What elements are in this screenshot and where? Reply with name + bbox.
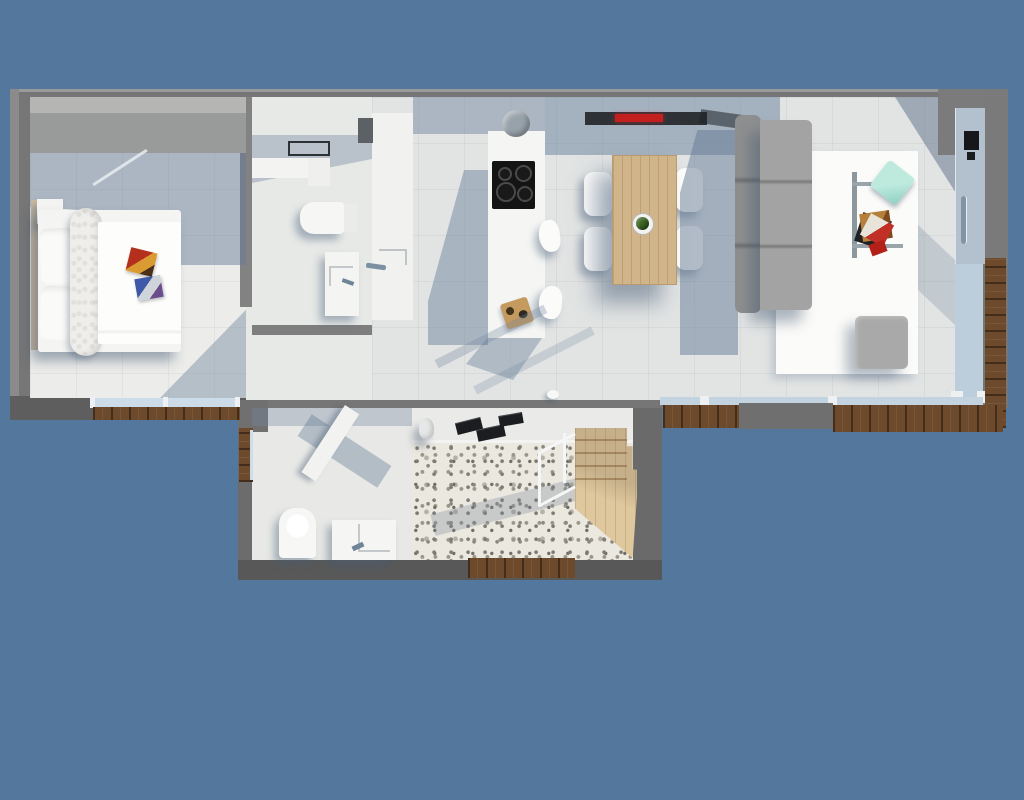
right-wall bbox=[983, 89, 1008, 265]
sofa-backrest bbox=[735, 115, 761, 313]
stair-treads bbox=[575, 428, 627, 488]
bathroom-mirror bbox=[288, 141, 330, 156]
wc-toilet-seat bbox=[284, 512, 311, 540]
burner bbox=[517, 186, 533, 202]
wall-bathroom-bottom bbox=[252, 325, 372, 335]
magazine-stack bbox=[856, 212, 896, 256]
dining-chair bbox=[584, 172, 612, 216]
vase bbox=[419, 418, 434, 439]
shower-tray-corner bbox=[379, 249, 407, 265]
sofa-seats bbox=[760, 120, 812, 310]
board-item bbox=[505, 306, 515, 316]
ottoman bbox=[855, 316, 908, 369]
door-vision-panel-small bbox=[967, 152, 975, 160]
wc-toilet bbox=[279, 508, 316, 558]
floorplan-scene bbox=[0, 0, 1024, 800]
wc-basin bbox=[358, 524, 390, 552]
stair-railing-post bbox=[538, 453, 541, 507]
shower-column bbox=[372, 113, 413, 320]
glass-wall-right bbox=[955, 264, 983, 400]
sofa-left-shadow bbox=[680, 130, 738, 355]
shower-wall-block bbox=[358, 118, 373, 143]
small-floor-object bbox=[547, 390, 559, 399]
wall-extension-right bbox=[633, 408, 662, 560]
burner bbox=[496, 182, 516, 202]
bedroom-window-sill bbox=[93, 407, 240, 420]
wardrobe bbox=[30, 113, 246, 153]
plant-leaves bbox=[636, 217, 649, 230]
wc-window-glass bbox=[250, 430, 253, 480]
deck-courtyard-bottom bbox=[468, 558, 575, 578]
extractor-hood bbox=[502, 110, 530, 137]
dining-chair bbox=[584, 227, 612, 271]
hifi-red-unit bbox=[615, 114, 663, 122]
wall-left-edge bbox=[10, 89, 19, 419]
deck-bottom-right bbox=[833, 405, 1003, 432]
door-vision-panel bbox=[964, 131, 979, 150]
wall-bottom-mid bbox=[739, 403, 833, 429]
burner bbox=[498, 167, 512, 181]
toilet bbox=[300, 202, 344, 234]
wall-top-highlight bbox=[10, 89, 1008, 92]
deck-bottom-left bbox=[663, 405, 739, 428]
magazine bbox=[134, 275, 163, 301]
door-handle bbox=[961, 196, 967, 244]
wardrobe-top-shelf bbox=[30, 97, 246, 113]
burner bbox=[515, 165, 532, 182]
toilet-tank bbox=[344, 204, 358, 232]
deck-right bbox=[985, 258, 1006, 428]
cooktop bbox=[492, 161, 535, 209]
extension-bottom-edge bbox=[238, 560, 662, 580]
wc-vanity bbox=[332, 520, 396, 560]
bathroom-counter-end bbox=[308, 158, 330, 186]
